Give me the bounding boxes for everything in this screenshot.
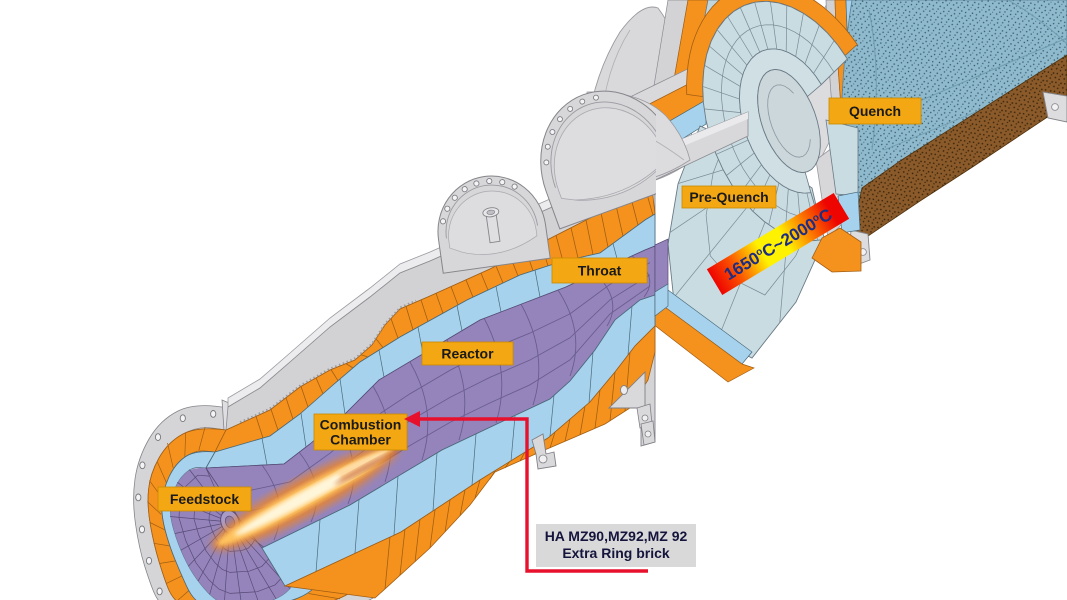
svg-text:Quench: Quench: [849, 103, 901, 119]
svg-text:Pre-Quench: Pre-Quench: [689, 189, 768, 205]
svg-text:Throat: Throat: [578, 263, 622, 279]
svg-text:Chamber: Chamber: [330, 432, 391, 448]
svg-text:Feedstock: Feedstock: [170, 491, 239, 507]
svg-text:HA MZ90,MZ92,MZ 92: HA MZ90,MZ92,MZ 92: [545, 528, 688, 544]
svg-text:Combustion: Combustion: [320, 417, 402, 433]
svg-text:Reactor: Reactor: [441, 346, 494, 362]
svg-text:Extra Ring brick: Extra Ring brick: [562, 545, 670, 561]
